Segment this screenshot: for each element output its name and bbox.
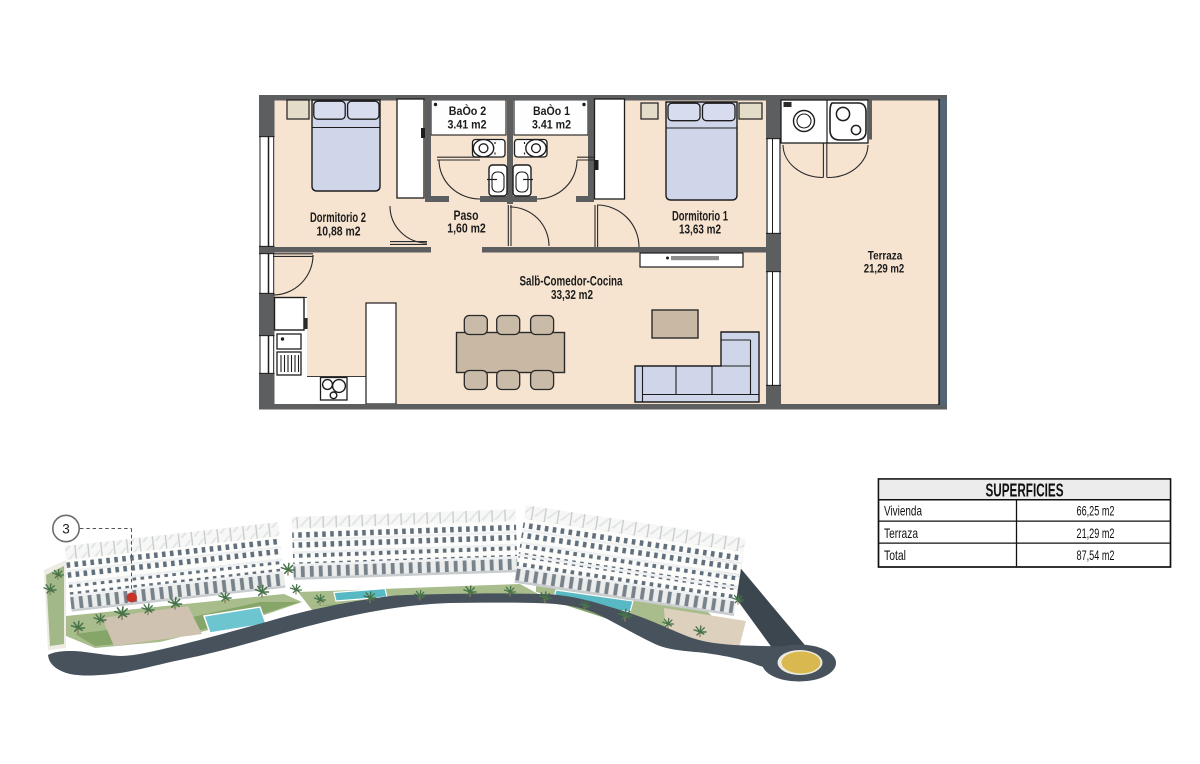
svg-text:BaÒo 1: BaÒo 1 <box>533 103 570 118</box>
svg-text:SUPERFICIES: SUPERFICIES <box>986 480 1064 501</box>
svg-text:Total: Total <box>884 548 906 563</box>
svg-text:21,29 m2: 21,29 m2 <box>864 262 905 276</box>
svg-text:87,54 m2: 87,54 m2 <box>1077 548 1115 563</box>
svg-text:1,60 m2: 1,60 m2 <box>447 221 486 236</box>
svg-text:33,32 m2: 33,32 m2 <box>551 287 593 302</box>
svg-text:66,25 m2: 66,25 m2 <box>1077 504 1115 519</box>
svg-text:BaÒo 2: BaÒo 2 <box>449 103 487 118</box>
svg-text:3: 3 <box>62 522 70 537</box>
svg-text:3.41 m2: 3.41 m2 <box>532 118 571 132</box>
svg-text:10,88 m2: 10,88 m2 <box>317 224 361 239</box>
svg-text:Terraza: Terraza <box>884 526 918 541</box>
svg-text:21,29 m2: 21,29 m2 <box>1077 526 1115 541</box>
svg-text:13,63 m2: 13,63 m2 <box>679 222 721 237</box>
svg-text:Terraza: Terraza <box>868 249 903 263</box>
svg-text:3.41 m2: 3.41 m2 <box>448 118 487 132</box>
svg-text:Vivienda: Vivienda <box>884 504 922 519</box>
